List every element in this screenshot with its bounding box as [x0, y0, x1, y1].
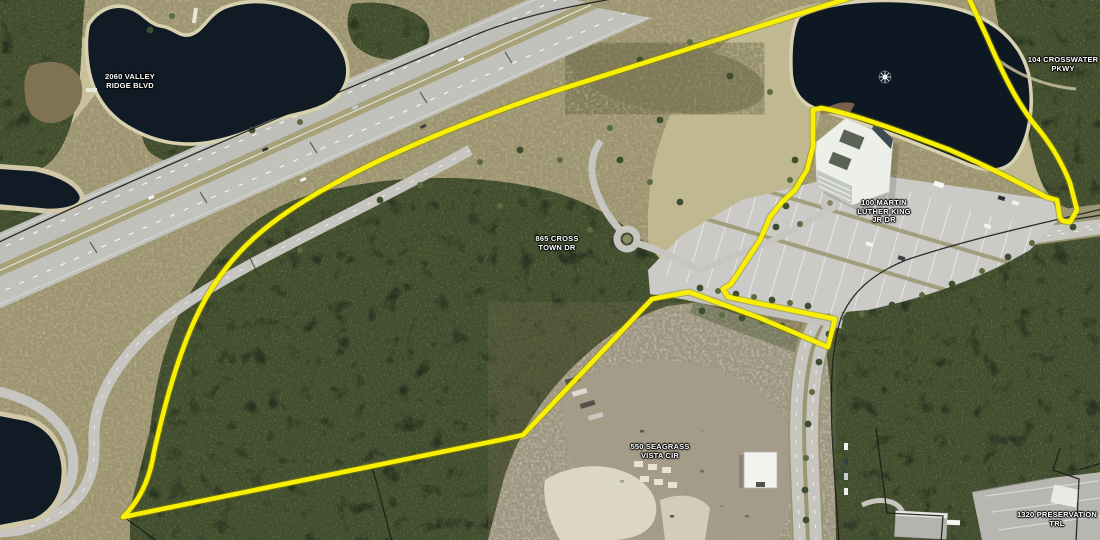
aerial-imagery — [0, 0, 1100, 540]
building-under-construction — [739, 452, 777, 488]
fountain — [879, 71, 891, 83]
dock — [86, 88, 97, 92]
aerial-map: 2060 VALLEY RIDGE BLVD 104 CROSSWATER PK… — [0, 0, 1100, 540]
